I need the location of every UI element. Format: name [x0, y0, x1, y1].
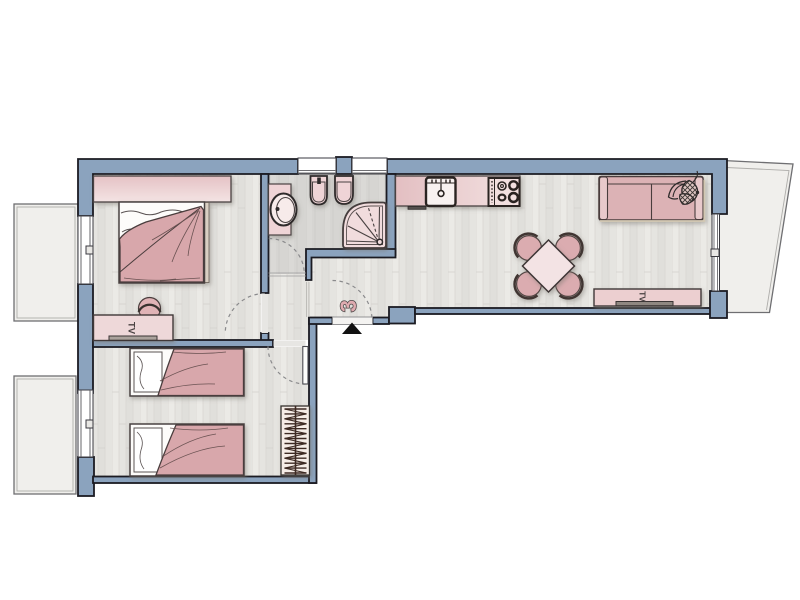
svg-text:TV: TV — [125, 322, 136, 335]
svg-text:TV: TV — [637, 291, 647, 302]
svg-text:3: 3 — [336, 300, 361, 312]
